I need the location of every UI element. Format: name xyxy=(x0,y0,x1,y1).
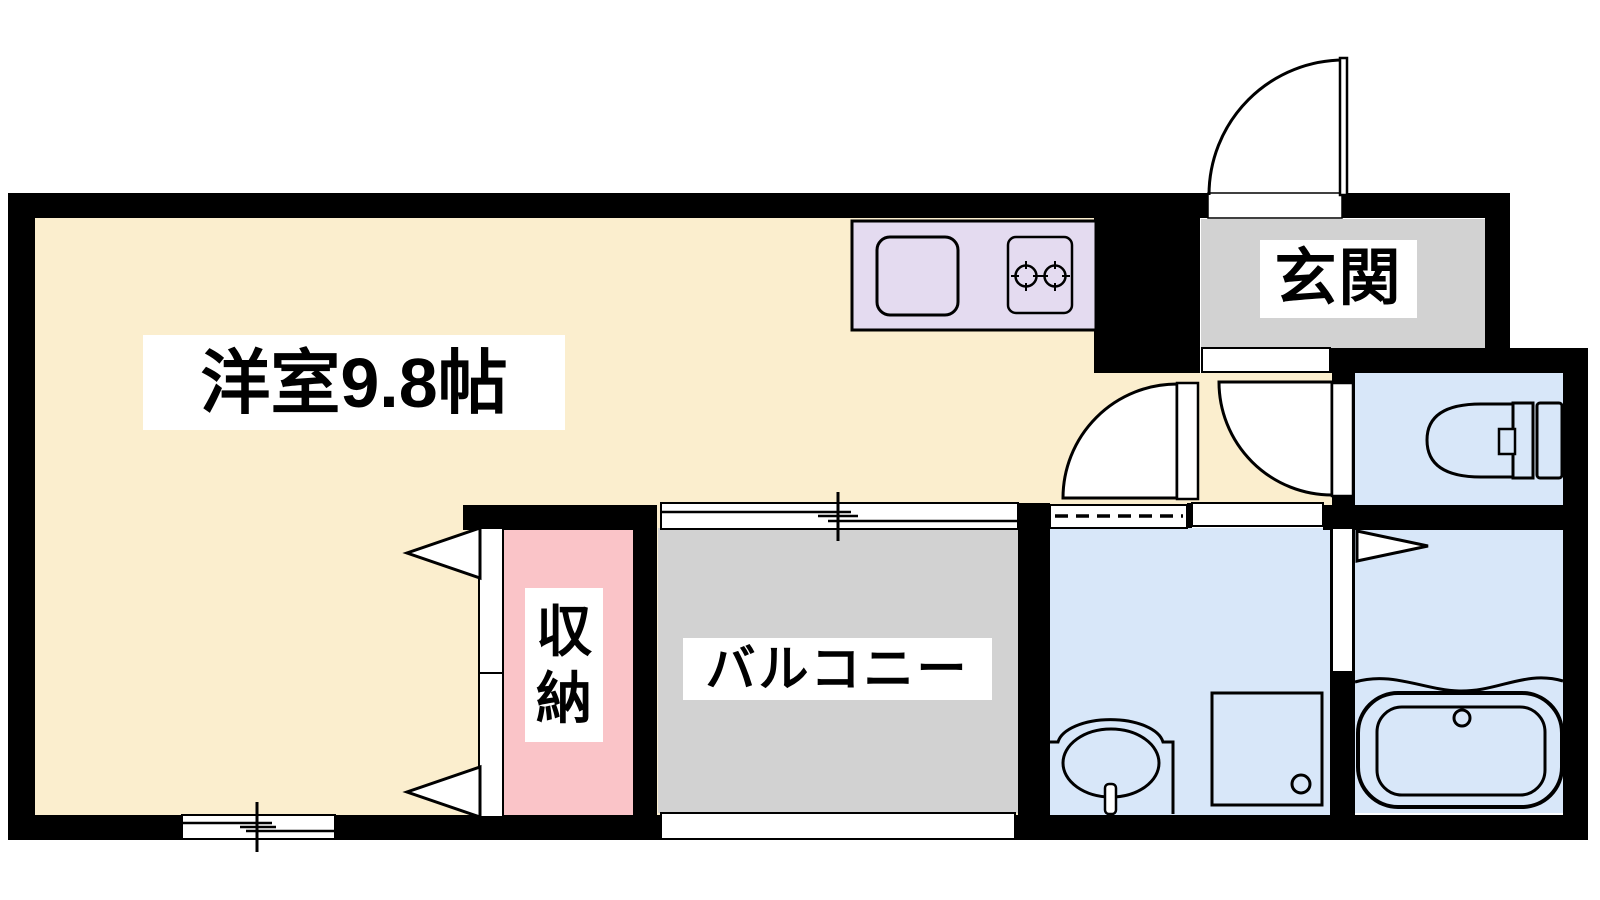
washroom-floor xyxy=(1045,528,1330,817)
washroom-dashed-opening xyxy=(1050,505,1187,528)
entry-door-swing-icon xyxy=(1209,60,1344,195)
entrance-step xyxy=(1202,348,1330,372)
wall-closet-right xyxy=(633,505,657,817)
bath-door-gap xyxy=(1332,528,1353,672)
toilet-seat-notch xyxy=(1499,429,1515,454)
wall-washroom-left xyxy=(1018,503,1050,840)
bathroom-floor xyxy=(1355,528,1563,813)
wall-entrance-right xyxy=(1485,193,1510,373)
wall-top-right xyxy=(1342,193,1510,218)
wall-bottom-3 xyxy=(1015,815,1588,840)
wall-entrance-toilet xyxy=(1330,348,1588,373)
closet-label-char-2: 納 xyxy=(536,665,592,732)
wall-left xyxy=(8,193,35,840)
interior-door-leaf xyxy=(1177,383,1198,499)
wall-bottom-1 xyxy=(8,815,182,840)
entry-threshold xyxy=(1208,193,1342,218)
closet-track-bottom xyxy=(479,673,503,817)
main-room-label: 洋室9.8帖 xyxy=(143,335,565,430)
closet-track-top xyxy=(479,528,503,673)
washbasin-faucet xyxy=(1105,784,1116,814)
closet-label-char-1: 収 xyxy=(536,598,592,665)
entry-door-leaf xyxy=(1340,58,1347,195)
wall-right xyxy=(1563,350,1588,840)
wall-kitchen-side xyxy=(1094,193,1200,373)
kitchen-unit xyxy=(852,221,1096,330)
floor-plan-drawing xyxy=(0,0,1600,900)
balcony-railing xyxy=(661,813,1015,839)
wall-closet-top xyxy=(463,505,657,530)
wall-bottom-2 xyxy=(335,815,661,840)
wall-toilet-bottom xyxy=(1323,505,1563,530)
entrance-label: 玄関 xyxy=(1260,240,1417,318)
wall-top-left xyxy=(8,193,1208,218)
floor-plan: 洋室9.8帖 玄関 収 納 バルコニー xyxy=(0,0,1600,900)
closet-label: 収 納 xyxy=(525,588,603,742)
washroom-door-opening xyxy=(1192,503,1323,526)
balcony-label: バルコニー xyxy=(683,638,992,700)
toilet-door-leaf xyxy=(1332,383,1353,496)
